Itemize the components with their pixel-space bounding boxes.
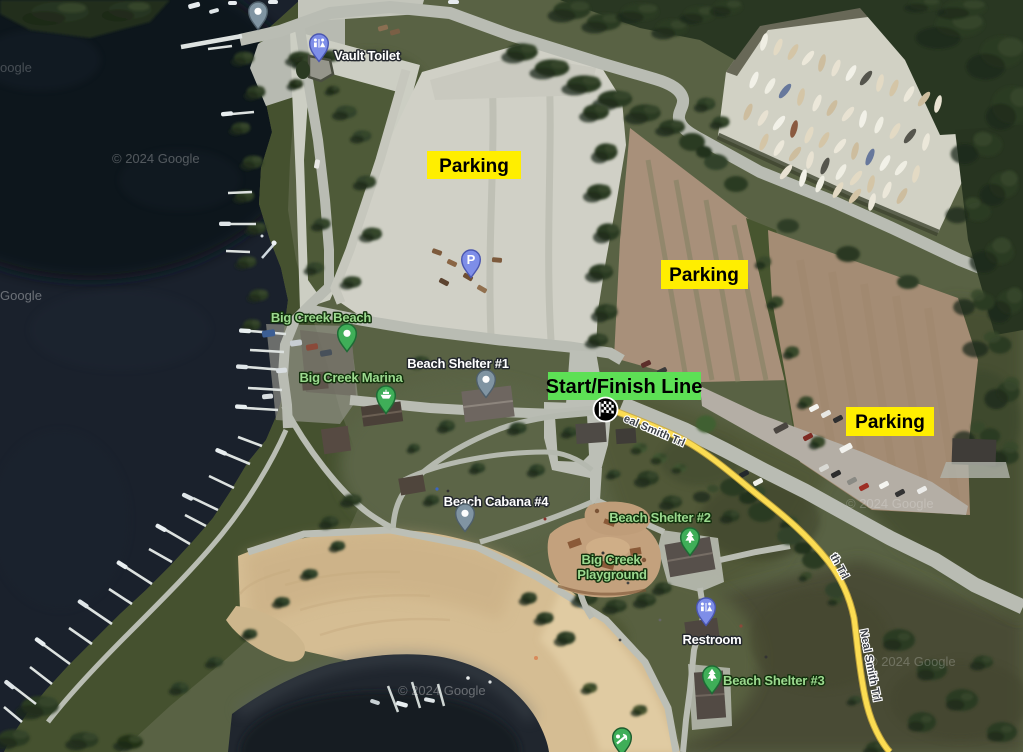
svg-text:Big Creek Beach: Big Creek Beach bbox=[271, 310, 372, 325]
svg-text:© 2024 Google: © 2024 Google bbox=[112, 151, 200, 166]
svg-text:© 2024 Google: © 2024 Google bbox=[398, 683, 486, 698]
svg-text:© 2024 Google: © 2024 Google bbox=[868, 654, 956, 669]
svg-text:Parking: Parking bbox=[855, 412, 925, 433]
svg-text:Vault Toilet: Vault Toilet bbox=[334, 48, 401, 63]
svg-text:© 2024 Google: © 2024 Google bbox=[846, 496, 934, 511]
svg-text:Beach Shelter #2: Beach Shelter #2 bbox=[609, 510, 711, 525]
svg-text:oogle: oogle bbox=[0, 60, 32, 75]
svg-text:Google: Google bbox=[0, 288, 42, 303]
svg-text:Parking: Parking bbox=[439, 156, 509, 177]
svg-text:Playground: Playground bbox=[577, 567, 647, 582]
svg-text:Beach Shelter #3: Beach Shelter #3 bbox=[723, 673, 825, 688]
svg-text:Restroom: Restroom bbox=[682, 632, 741, 647]
svg-text:Beach Shelter #1: Beach Shelter #1 bbox=[407, 356, 509, 371]
svg-text:Big Creek Marina: Big Creek Marina bbox=[299, 370, 403, 385]
svg-text:Big Creek: Big Creek bbox=[582, 552, 642, 567]
svg-text:Start/Finish Line: Start/Finish Line bbox=[546, 376, 703, 398]
svg-text:Parking: Parking bbox=[669, 265, 739, 286]
